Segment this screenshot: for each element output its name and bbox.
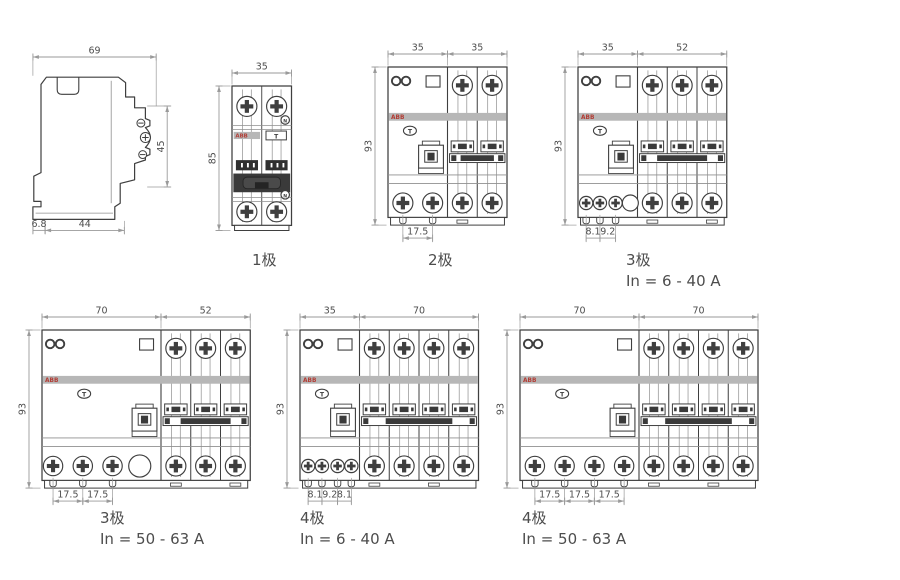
screw-terminal [43,456,62,475]
svg-text:70: 70 [413,306,425,317]
screw-terminal [555,456,574,475]
pole-2-drawing: ABBT35359317.5 [362,41,519,251]
screw-terminal [364,338,384,358]
screw-terminal [674,338,694,358]
screw-terminal [424,338,444,358]
svg-text:9.2: 9.2 [322,490,337,501]
svg-text:ABB: ABB [523,378,537,384]
screw-terminal [482,193,502,213]
figure-side-view: 69456.844 [22,44,190,250]
screw-terminal [364,456,384,476]
svg-text:70: 70 [692,306,704,317]
svg-text:8.1: 8.1 [337,490,352,501]
svg-text:17.5: 17.5 [87,490,108,501]
device-body: ABBT [42,330,250,488]
caption-line: In = 50 - 63 A [100,529,204,550]
figure-2-pole-front: ABBT35359317.5 [362,41,519,255]
screw-terminal [642,75,662,95]
caption-line: 1极 [252,250,277,271]
screw-terminal [423,193,443,213]
device-body: ABBT [388,67,507,225]
screw-terminal [225,338,245,358]
screw-terminal [315,459,328,472]
figure-4-pole-6-40-front: ABBT3570938.19.28.1 [274,304,491,518]
caption-line: 4极 [522,508,626,529]
screw-terminal [454,338,474,358]
screw-terminal [672,193,692,213]
screw-terminal [702,75,722,95]
dimension-diagram-page: 69456.844 ABBTNN3585 ABBT35359317.5 ABBT… [0,0,900,580]
screw-terminal [672,75,692,95]
screw-terminal [452,75,472,95]
screw-terminal [394,456,414,476]
svg-text:35: 35 [471,43,483,54]
svg-text:ABB: ABB [303,378,317,384]
svg-text:6.8: 6.8 [31,219,46,230]
svg-text:93: 93 [554,140,565,152]
pole-3-63-drawing: ABBT70529317.517.5 [16,304,262,514]
caption-2-pole: 2极 [428,250,453,271]
screw-terminal [73,456,92,475]
pole-1-drawing: ABBTNN3585 [206,60,304,241]
screw-terminal [166,456,186,476]
svg-text:9.2: 9.2 [600,227,615,238]
svg-text:69: 69 [89,46,101,57]
svg-text:ABB: ABB [45,378,59,384]
svg-text:93: 93 [18,403,29,415]
screw-terminal [593,196,606,209]
screw-terminal [196,338,216,358]
svg-text:35: 35 [324,306,336,317]
svg-text:8.1: 8.1 [307,490,322,501]
screw-terminal [196,456,216,476]
caption-line: In = 50 - 63 A [522,529,626,550]
svg-text:70: 70 [573,306,585,317]
device-body: ABBT [578,67,727,225]
svg-text:70: 70 [95,306,107,317]
screw-terminal [580,196,593,209]
screw-terminal [644,456,664,476]
screw-terminal [609,196,622,209]
screw-terminal [331,459,344,472]
svg-text:17.5: 17.5 [407,227,428,238]
screw-terminal [702,193,722,213]
caption-line: In = 6 - 40 A [626,271,721,292]
svg-text:52: 52 [200,306,212,317]
pole-4-40-drawing: ABBT3570938.19.28.1 [274,304,491,514]
caption-line: 3极 [626,250,721,271]
screw-terminal [393,193,413,213]
figure-3-pole-50-63-front: ABBT70529317.517.5 [16,304,262,518]
screw-terminal [674,456,694,476]
svg-text:N: N [283,194,287,200]
svg-text:17.5: 17.5 [539,490,560,501]
screw-terminal [225,456,245,476]
svg-text:52: 52 [676,43,688,54]
screw-terminal [166,338,186,358]
svg-text:44: 44 [79,219,91,230]
figure-1-pole-front: ABBTNN3585 [206,60,304,245]
screw-terminal [614,456,633,475]
caption-1-pole: 1极 [252,250,277,271]
svg-text:ABB: ABB [581,115,595,121]
screw-terminal [482,75,502,95]
svg-text:8.1: 8.1 [585,227,600,238]
svg-text:45: 45 [156,140,167,152]
caption-4-pole-6-40: 4极 In = 6 - 40 A [300,508,395,550]
caption-line: 4极 [300,508,395,529]
svg-text:35: 35 [602,43,614,54]
device-body: ABBTNN [232,86,292,231]
caption-line: In = 6 - 40 A [300,529,395,550]
pole-4-63-drawing: ABBT70709317.517.517.5 [494,304,770,514]
screw-terminal [585,456,604,475]
caption-line: 3极 [100,508,204,529]
screw-terminal [525,456,544,475]
screw-terminal [302,459,315,472]
svg-text:N: N [283,119,287,125]
svg-text:85: 85 [208,152,219,164]
device-body: ABBT [520,330,758,488]
caption-line: 2极 [428,250,453,271]
figure-4-pole-50-63-front: ABBT70709317.517.517.5 [494,304,770,518]
svg-text:35: 35 [412,43,424,54]
screw-terminal [733,338,753,358]
caption-3-pole-6-40: 3极 In = 6 - 40 A [626,250,721,292]
caption-3-pole-50-63: 3极 In = 50 - 63 A [100,508,204,550]
svg-text:93: 93 [496,403,507,415]
figure-3-pole-6-40-front: ABBT3552938.19.2 [552,41,739,255]
svg-text:17.5: 17.5 [57,490,78,501]
screw-terminal [733,456,753,476]
screw-terminal [103,456,122,475]
pole-3-40-drawing: ABBT3552938.19.2 [552,41,739,251]
screw-terminal [703,338,723,358]
svg-text:93: 93 [276,403,287,415]
svg-text:ABB: ABB [235,134,247,140]
svg-text:17.5: 17.5 [569,490,590,501]
svg-text:93: 93 [364,140,375,152]
screw-terminal [237,202,257,222]
screw-terminal [345,459,358,472]
screw-terminal [452,193,472,213]
screw-terminal [454,456,474,476]
svg-text:ABB: ABB [391,115,405,121]
caption-4-pole-50-63: 4极 In = 50 - 63 A [522,508,626,550]
svg-text:17.5: 17.5 [599,490,620,501]
side-view-drawing: 69456.844 [22,44,190,246]
screw-terminal [267,96,287,116]
device-body: ABBT [300,330,479,488]
screw-terminal [703,456,723,476]
screw-terminal [644,338,664,358]
screw-terminal [267,202,287,222]
device-profile [33,77,151,219]
svg-text:35: 35 [256,62,268,73]
screw-terminal [642,193,662,213]
screw-terminal [237,96,257,116]
screw-terminal [424,456,444,476]
screw-terminal [394,338,414,358]
